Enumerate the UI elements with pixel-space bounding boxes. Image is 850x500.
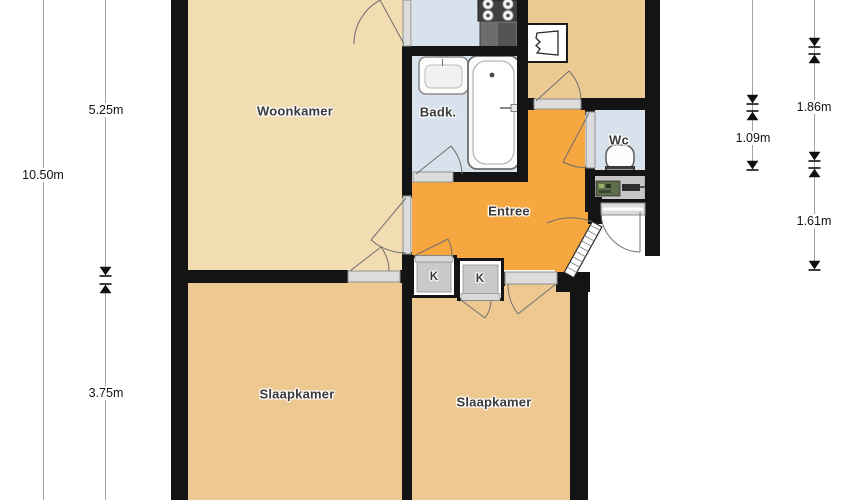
stove-icon [478,0,518,21]
floorplan-canvas: Woonkamer Badk. Entree Wc K K Slaapkamer… [0,0,850,500]
dim-label-3-75: 3.75m [87,386,126,400]
door-portiek [601,212,640,252]
dim-label-1-61: 1.61m [795,214,834,228]
room-slaapkamer-rechts [412,282,572,500]
floorplan-drawing [0,0,850,500]
label-kast-1: K [430,271,439,283]
label-slaapkamer-rechts: Slaapkamer [457,395,532,410]
counter-icon [480,21,518,48]
label-woonkamer: Woonkamer [257,104,333,119]
label-slaapkamer-links: Slaapkamer [260,387,335,402]
label-entree: Entree [488,204,530,219]
dim-label-1-86: 1.86m [795,100,834,114]
boiler-icon [527,24,567,62]
closets [411,255,504,301]
room-entree-arm [527,106,585,183]
dim-label-1-09: 1.09m [734,131,773,145]
dim-label-10-50: 10.50m [20,168,66,182]
label-badkamer: Badk. [420,105,456,120]
label-wc: Wc [609,133,629,148]
dim-label-5-25: 5.25m [87,103,126,117]
bathtub-icon [468,56,519,169]
label-kast-2: K [476,273,485,285]
washbasin-icon [419,51,468,94]
room-woonkamer [188,0,403,271]
